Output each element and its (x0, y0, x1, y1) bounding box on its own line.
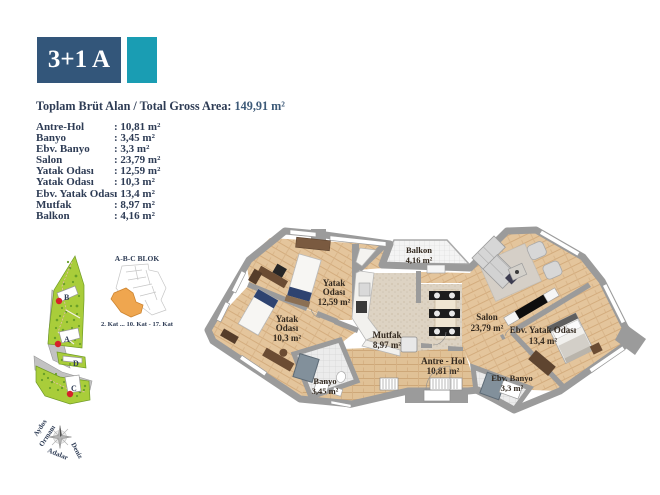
svg-text:Balkon: Balkon (406, 245, 432, 255)
svg-text:A-B-C BLOK: A-B-C BLOK (115, 254, 160, 263)
svg-text:Salon: Salon (476, 312, 498, 322)
svg-text:13,4 m²: 13,4 m² (529, 336, 557, 346)
svg-text:Deniz: Deniz (69, 441, 84, 460)
svg-text:10,3 m²: 10,3 m² (273, 333, 301, 343)
svg-text:Banyo: Banyo (313, 376, 336, 386)
svg-text:C: C (71, 384, 77, 393)
svg-text:Antre - Hol: Antre - Hol (421, 356, 465, 366)
svg-text:Mutfak: Mutfak (373, 330, 402, 340)
svg-text:4,16 m²: 4,16 m² (406, 255, 433, 265)
svg-text:Odası: Odası (323, 287, 346, 297)
svg-text:Ebv. Yatak Odası: Ebv. Yatak Odası (510, 325, 577, 335)
svg-text:3,45 m²: 3,45 m² (312, 386, 339, 396)
svg-text:2. Kat ... 10. Kat - 17. Kat: 2. Kat ... 10. Kat - 17. Kat (101, 321, 174, 328)
svg-text:Ebv. Banyo: Ebv. Banyo (491, 373, 533, 383)
svg-text:D: D (73, 359, 79, 368)
svg-text:Odası: Odası (276, 323, 299, 333)
svg-text:B: B (64, 293, 70, 302)
svg-text:12,59 m²: 12,59 m² (318, 297, 351, 307)
svg-text:23,79 m²: 23,79 m² (471, 323, 504, 333)
svg-text:8,97 m²: 8,97 m² (373, 340, 401, 350)
svg-text:Adalar: Adalar (46, 446, 70, 462)
svg-text:3,3 m²: 3,3 m² (501, 383, 524, 393)
svg-text:A: A (64, 335, 70, 344)
